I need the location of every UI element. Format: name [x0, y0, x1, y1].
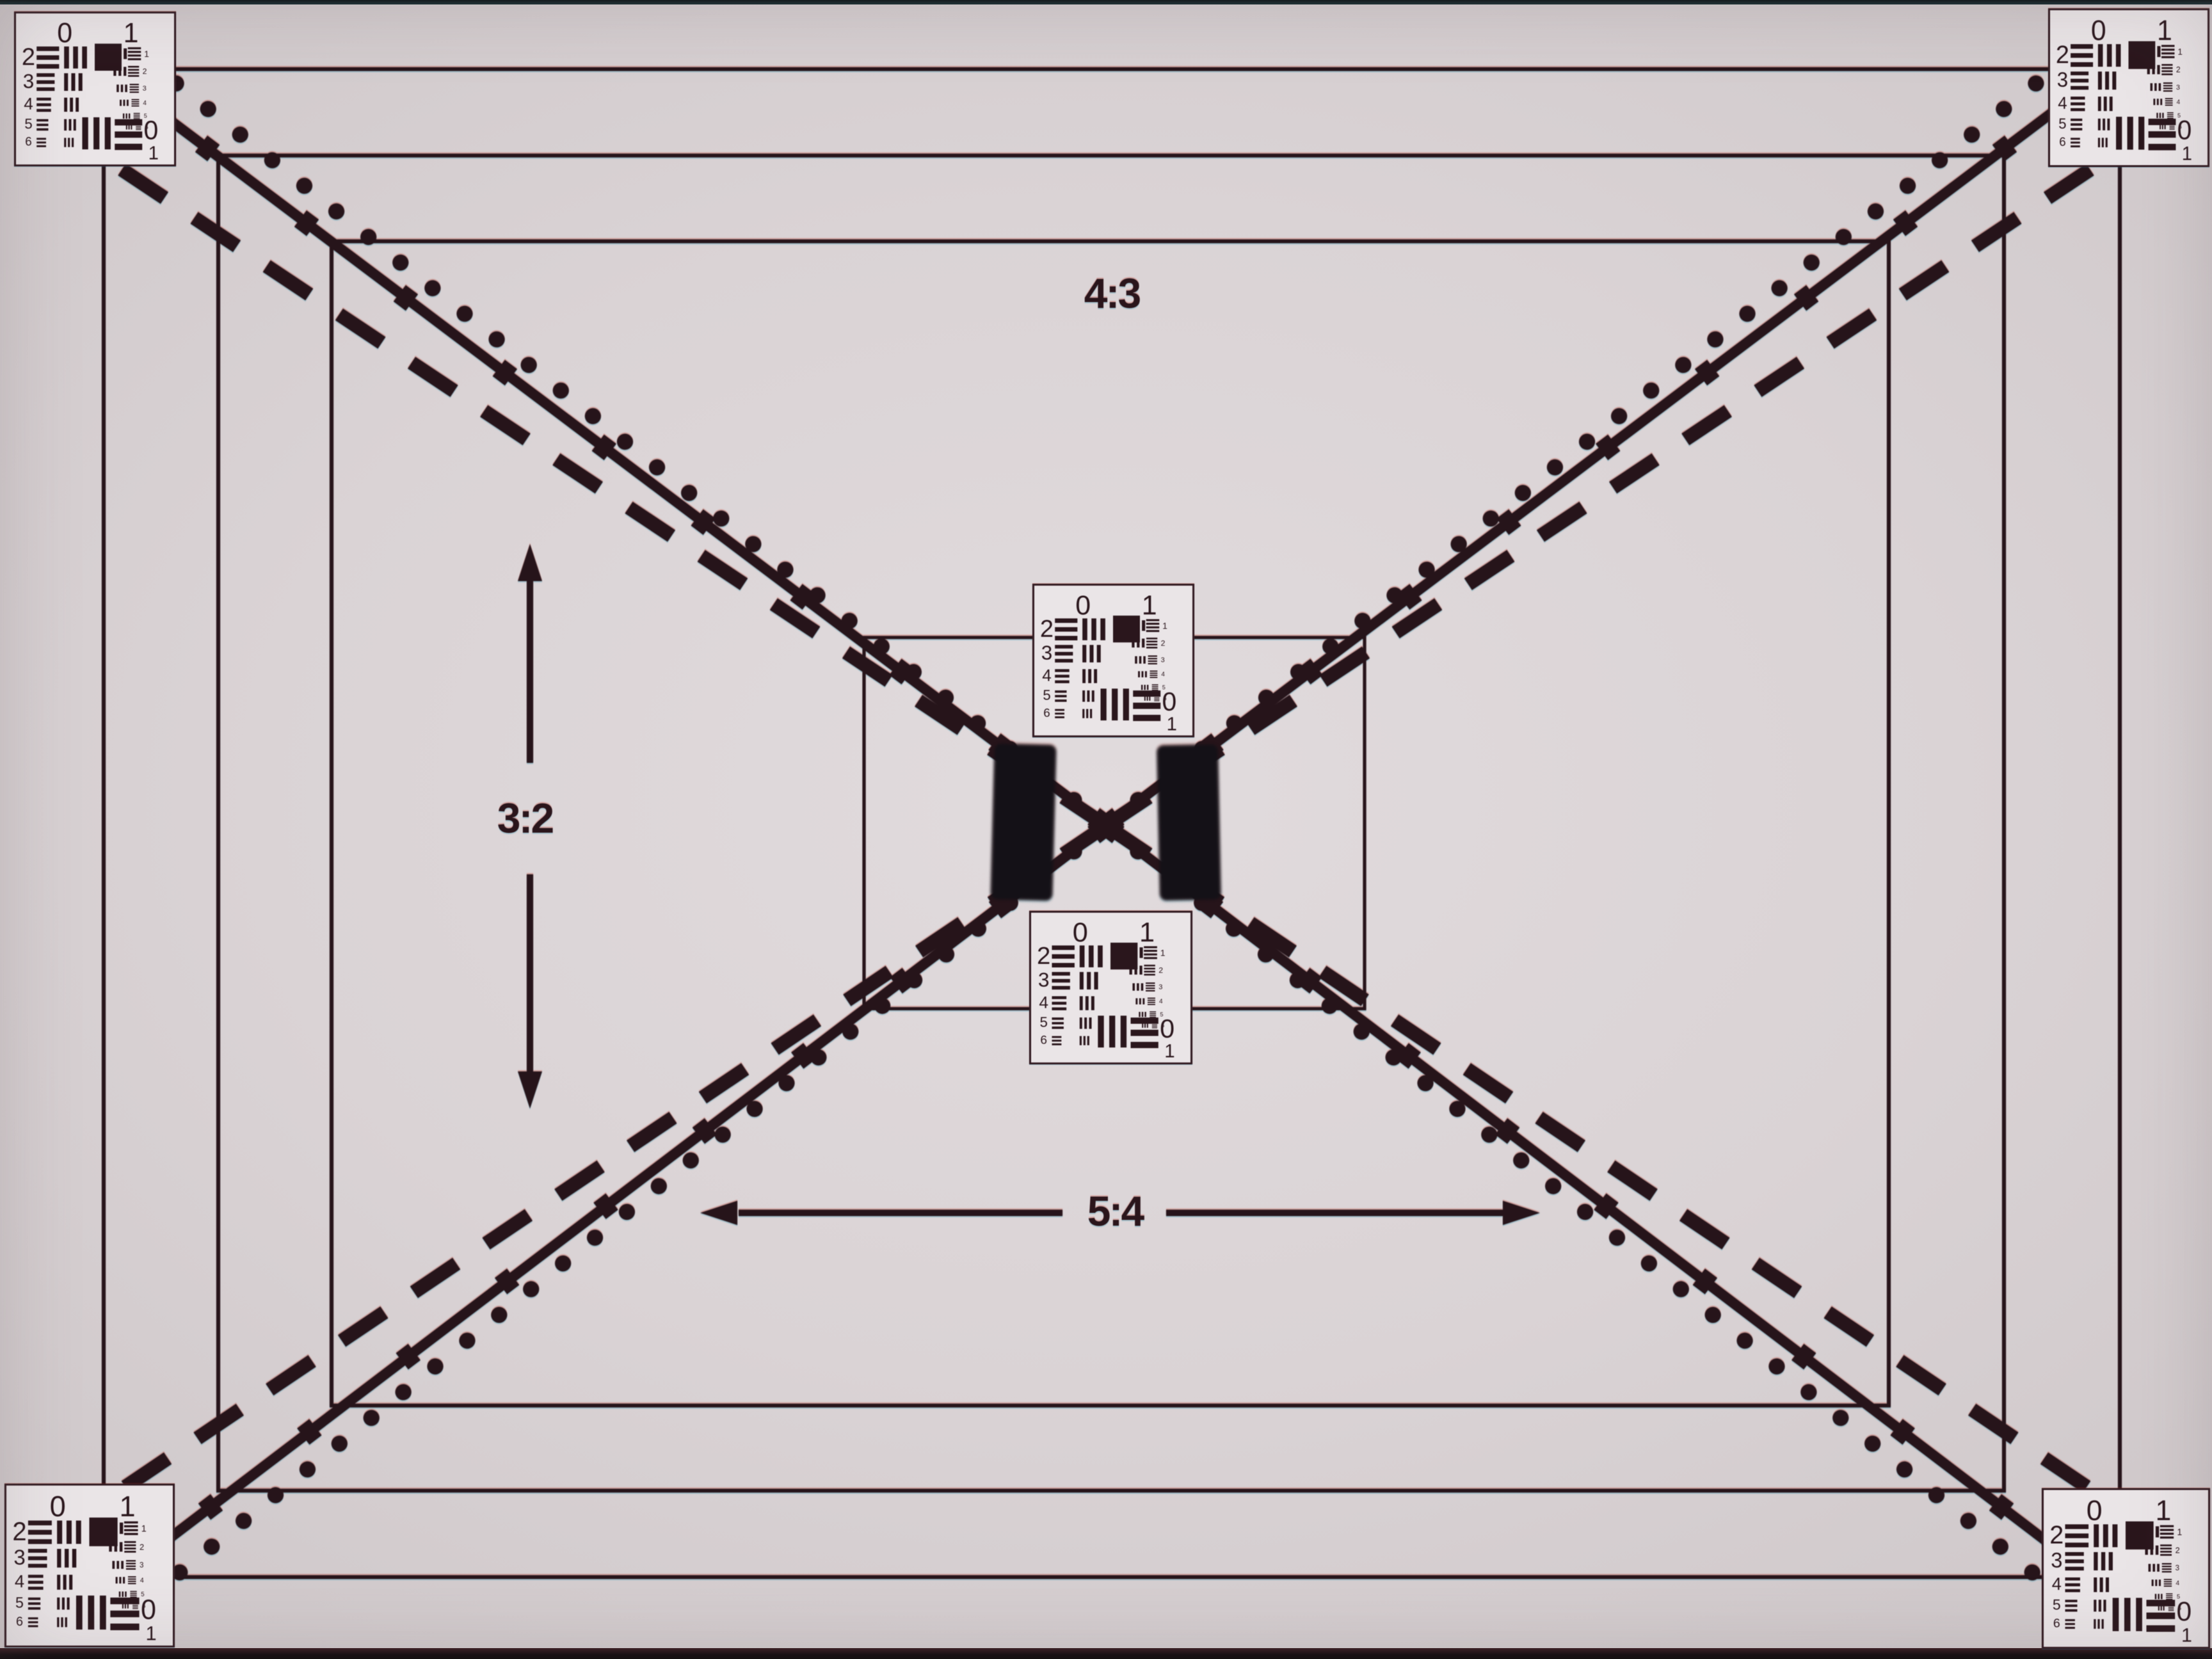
small-v-bar: [1144, 1023, 1146, 1028]
big-h-bar: [1133, 715, 1160, 721]
h-bar: [2065, 1567, 2084, 1571]
small-h-bar: [1152, 1027, 1157, 1028]
element-number: 4: [143, 100, 147, 107]
h-bar: [1055, 712, 1064, 714]
small-h-bar: [1150, 675, 1157, 676]
big-h-bar: [2149, 118, 2176, 125]
row-number: 3: [2057, 68, 2068, 92]
chart-linework: [0, 0, 2212, 1659]
small-h-bar: [2161, 70, 2172, 72]
h-bar: [36, 55, 59, 60]
usaf-target-top-right: 012345612345601: [2048, 8, 2209, 167]
row-number: 3: [23, 70, 34, 93]
small-v-bar: [1132, 639, 1134, 648]
v-bar: [72, 138, 74, 147]
v-bar: [1091, 996, 1094, 1010]
big-h-bar: [110, 1598, 139, 1604]
v-bar: [2101, 1552, 2105, 1571]
small-h-bar: [2169, 126, 2174, 127]
h-bar: [1055, 700, 1066, 702]
small-v-bar: [1134, 947, 1137, 958]
v-bar: [64, 73, 68, 91]
small-v-bar: [129, 113, 130, 118]
h-bar: [2065, 1627, 2075, 1629]
v-bar: [1097, 645, 1101, 662]
big-h-bar: [2146, 1600, 2175, 1607]
h-bar: [2065, 1609, 2078, 1612]
v-bar: [1100, 618, 1105, 640]
arrowhead-left-icon: [700, 1201, 737, 1225]
row-number: 3: [1041, 642, 1052, 664]
small-v-bar: [1137, 983, 1139, 991]
usaf-target-bottom-left: 012345612345601: [4, 1484, 175, 1647]
v-bar: [57, 1521, 62, 1544]
small-v-bar: [1132, 983, 1135, 991]
small-h-bar: [1146, 627, 1160, 629]
small-v-bar: [2151, 46, 2154, 57]
target-bottom-label-0: 0: [1162, 687, 1176, 716]
small-v-bar: [2158, 1594, 2160, 1599]
v-bar: [64, 98, 67, 112]
small-h-bar: [1152, 686, 1158, 687]
small-h-bar: [2161, 56, 2174, 58]
target-top-label-1: 1: [1142, 590, 1157, 621]
small-v-bar: [116, 1561, 119, 1569]
big-h-bar: [115, 131, 142, 138]
target-bottom-label-1: 1: [146, 1622, 157, 1644]
small-v-bar: [1135, 998, 1137, 1005]
element-number: 1: [144, 49, 149, 59]
small-h-bar: [1146, 623, 1160, 625]
small-v-bar: [1141, 685, 1142, 690]
reference-square: [2129, 41, 2156, 68]
small-h-bar: [1148, 1000, 1155, 1001]
velcro-patch-left: [991, 744, 1056, 901]
h-bar: [28, 1598, 40, 1600]
big-v-bar: [82, 117, 88, 149]
small-h-bar: [1144, 957, 1157, 959]
small-h-bar: [1146, 637, 1157, 639]
reference-square: [95, 44, 122, 70]
small-h-bar: [1146, 990, 1155, 991]
v-bar: [2094, 1599, 2096, 1612]
v-bar: [57, 1617, 59, 1627]
arrowhead-up-icon: [518, 544, 542, 581]
h-bar: [2071, 108, 2085, 111]
h-bar: [1055, 680, 1069, 683]
small-h-bar: [1150, 1013, 1156, 1014]
v-bar: [57, 1598, 60, 1610]
big-v-bar: [88, 1596, 94, 1630]
v-bar: [1098, 945, 1103, 967]
small-h-bar: [130, 1593, 136, 1594]
small-v-bar: [2160, 99, 2162, 105]
small-h-bar: [2167, 114, 2174, 115]
big-h-bar: [1133, 703, 1160, 709]
small-v-bar: [1142, 639, 1144, 648]
small-v-bar: [2152, 1564, 2155, 1571]
small-v-bar: [118, 49, 121, 60]
small-v-bar: [2155, 1594, 2157, 1599]
small-h-bar: [2161, 64, 2172, 66]
h-bar: [28, 1521, 52, 1526]
small-h-bar: [124, 1548, 136, 1550]
big-v-bar: [93, 117, 99, 149]
element-number: 3: [140, 1561, 143, 1569]
v-bar: [82, 47, 87, 68]
photo-edge-bottom: [0, 1648, 2212, 1659]
small-v-bar: [111, 49, 115, 60]
h-bar: [28, 1617, 38, 1619]
v-bar: [1089, 1018, 1092, 1029]
target-top-label-0: 0: [57, 18, 72, 49]
h-bar: [28, 1549, 47, 1553]
small-v-bar: [131, 125, 132, 130]
element-number: 3: [2176, 84, 2180, 92]
small-h-bar: [2164, 1585, 2172, 1587]
small-v-bar: [2162, 125, 2163, 129]
v-bar: [1082, 645, 1086, 662]
small-h-bar: [124, 1541, 136, 1543]
small-h-bar: [128, 66, 139, 68]
small-v-bar: [1147, 685, 1148, 690]
v-bar: [1087, 1036, 1089, 1045]
v-bar: [72, 1549, 76, 1567]
h-bar: [36, 80, 54, 84]
h-bar: [28, 1530, 52, 1535]
row-number: 4: [24, 94, 33, 113]
small-h-bar: [1148, 998, 1155, 999]
row-number: 5: [24, 116, 32, 132]
aspect-ratio-label-5-4: 5:4: [1045, 1187, 1185, 1235]
v-bar: [74, 119, 76, 131]
big-h-bar: [1131, 1042, 1158, 1048]
small-h-bar: [2163, 85, 2172, 86]
v-bar: [73, 47, 78, 68]
small-h-bar: [1148, 655, 1157, 657]
big-v-bar: [1109, 1016, 1115, 1048]
v-bar: [2097, 1619, 2099, 1629]
small-h-bar: [1152, 688, 1158, 689]
h-bar: [2065, 1605, 2078, 1607]
usaf-target-pattern: 012345612345601: [16, 13, 174, 164]
small-h-bar: [2160, 1544, 2172, 1546]
h-bar: [36, 47, 59, 51]
small-v-bar: [1147, 696, 1148, 701]
v-bar: [2094, 1552, 2097, 1571]
h-bar: [1052, 996, 1066, 998]
element-number: 1: [141, 1524, 147, 1534]
v-bar: [68, 138, 70, 147]
small-v-bar: [121, 84, 124, 92]
small-v-bar: [115, 1542, 117, 1551]
v-bar: [1082, 691, 1085, 702]
element-number: 2: [1161, 639, 1166, 648]
v-bar: [2098, 72, 2102, 90]
v-bar: [61, 1617, 63, 1627]
small-h-bar: [1144, 968, 1155, 970]
small-h-bar: [2160, 1525, 2174, 1527]
h-bar: [1052, 1039, 1061, 1041]
element-number: 3: [143, 85, 147, 93]
target-bottom-label-0: 0: [2177, 115, 2192, 145]
v-bar: [62, 1598, 65, 1610]
small-h-bar: [124, 1529, 138, 1531]
big-v-bar: [1098, 1016, 1103, 1048]
v-bar: [2105, 72, 2109, 90]
small-h-bar: [130, 84, 139, 85]
v-bar: [1086, 709, 1088, 718]
small-h-bar: [1146, 985, 1155, 986]
v-bar: [2102, 138, 2104, 147]
v-bar: [1089, 945, 1094, 967]
element-number: 3: [1161, 657, 1165, 664]
usaf-target-pattern: 012345612345601: [1031, 913, 1190, 1062]
h-bar: [2071, 72, 2088, 76]
h-bar: [1055, 675, 1069, 677]
small-v-bar: [2147, 65, 2150, 74]
small-h-bar: [126, 1566, 136, 1567]
v-bar: [2103, 1525, 2108, 1548]
v-bar: [1080, 996, 1083, 1010]
v-bar: [2094, 1525, 2099, 1548]
big-v-bar: [100, 1596, 106, 1630]
small-h-bar: [130, 1594, 136, 1596]
small-h-bar: [2169, 129, 2174, 129]
small-v-bar: [120, 1542, 122, 1551]
small-h-bar: [1150, 677, 1157, 678]
v-bar: [1082, 669, 1086, 683]
h-bar: [1052, 1036, 1061, 1038]
aspect-ratio-label-3-2: 3:2: [454, 794, 595, 842]
small-v-bar: [129, 125, 130, 130]
small-h-bar: [2168, 1608, 2174, 1609]
big-v-bar: [76, 1596, 83, 1630]
v-bar: [1089, 645, 1093, 662]
big-v-bar: [2136, 1598, 2142, 1631]
small-v-bar: [1144, 685, 1145, 690]
small-v-bar: [1142, 620, 1145, 631]
v-bar: [67, 1598, 70, 1610]
test-chart-photo: 4:3 3:2 5:4 0123456123456010123456123456…: [0, 0, 2212, 1659]
small-v-bar: [1139, 998, 1141, 1005]
small-h-bar: [128, 54, 141, 56]
v-bar: [2107, 44, 2112, 67]
target-top-label-0: 0: [2091, 15, 2106, 47]
small-h-bar: [1148, 1002, 1155, 1003]
small-v-bar: [1138, 671, 1140, 678]
v-bar: [2098, 44, 2103, 67]
small-h-bar: [1148, 1004, 1155, 1005]
v-bar: [2106, 1578, 2109, 1592]
small-h-bar: [128, 47, 141, 49]
element-number: 2: [1158, 966, 1163, 975]
small-v-bar: [1134, 966, 1137, 975]
small-h-bar: [128, 51, 141, 53]
small-h-bar: [130, 89, 139, 90]
h-bar: [28, 1539, 52, 1544]
h-bar: [36, 141, 46, 143]
v-bar: [1080, 972, 1084, 990]
h-bar: [2065, 1589, 2080, 1592]
big-h-bar: [110, 1624, 139, 1630]
v-bar: [2103, 1599, 2106, 1612]
small-v-bar: [2160, 125, 2161, 129]
h-bar: [2065, 1619, 2075, 1621]
h-bar: [28, 1607, 40, 1610]
row-number: 2: [1037, 942, 1050, 970]
small-h-bar: [2166, 1597, 2172, 1598]
h-bar: [36, 138, 46, 140]
v-bar: [67, 1521, 72, 1544]
small-h-bar: [2160, 1551, 2172, 1553]
v-bar: [1092, 691, 1094, 702]
small-v-bar: [2145, 46, 2149, 57]
small-h-bar: [128, 58, 141, 60]
diagonal-dashed-line-0: [96, 152, 1106, 826]
small-v-bar: [1143, 656, 1146, 664]
small-h-bar: [2161, 49, 2174, 51]
h-bar: [1055, 691, 1066, 693]
v-bar: [64, 119, 67, 131]
h-bar: [2071, 141, 2080, 143]
small-h-bar: [2162, 1566, 2172, 1567]
h-bar: [1055, 636, 1077, 640]
v-bar: [1094, 972, 1098, 990]
small-h-bar: [124, 1521, 138, 1523]
small-h-bar: [131, 99, 139, 100]
usaf-target-top-left: 012345612345601: [14, 12, 176, 166]
usaf-target-pattern: 012345612345601: [1034, 586, 1192, 735]
h-bar: [2071, 44, 2093, 49]
target-bottom-label-0: 0: [2177, 1596, 2192, 1627]
small-h-bar: [2167, 116, 2174, 117]
small-v-bar: [1137, 639, 1139, 648]
h-bar: [2071, 145, 2080, 147]
v-bar: [1090, 709, 1092, 718]
small-h-bar: [136, 126, 141, 127]
h-bar: [1055, 627, 1077, 632]
small-v-bar: [118, 67, 121, 76]
h-bar: [28, 1587, 44, 1590]
reference-square: [1113, 616, 1140, 643]
small-h-bar: [1150, 1015, 1156, 1016]
h-bar: [36, 73, 54, 77]
big-v-bar: [2138, 116, 2144, 149]
usaf-target-pattern: 012345612345601: [6, 1486, 173, 1646]
usaf-target-center-top: 012345612345601: [1032, 584, 1194, 737]
small-h-bar: [2161, 74, 2172, 76]
small-h-bar: [1150, 1011, 1156, 1012]
small-v-bar: [2152, 65, 2155, 74]
small-v-bar: [1135, 656, 1137, 664]
small-v-bar: [2156, 113, 2158, 118]
small-h-bar: [1148, 663, 1157, 664]
row-number: 4: [1039, 993, 1048, 1012]
small-v-bar: [2143, 1527, 2146, 1537]
small-h-bar: [1152, 1026, 1157, 1027]
photo-edge-top: [0, 0, 2212, 4]
small-h-bar: [2164, 1581, 2172, 1582]
small-v-bar: [1149, 696, 1150, 701]
v-bar: [1084, 1018, 1087, 1029]
target-bottom-label-1: 1: [148, 143, 159, 164]
big-h-bar: [1131, 1030, 1158, 1036]
small-h-bar: [1144, 974, 1155, 976]
small-v-bar: [1130, 620, 1133, 631]
v-bar: [69, 1575, 72, 1589]
h-bar: [1055, 659, 1073, 662]
h-bar: [2071, 62, 2093, 67]
small-h-bar: [2167, 112, 2174, 113]
small-v-bar: [2161, 1594, 2163, 1599]
v-bar: [2094, 1619, 2096, 1629]
small-h-bar: [131, 103, 139, 104]
small-h-bar: [2164, 1583, 2172, 1585]
v-bar: [57, 1549, 61, 1567]
usaf-target-center-bottom: 012345612345601: [1029, 911, 1192, 1064]
small-h-bar: [132, 1608, 138, 1609]
h-bar: [1052, 954, 1074, 959]
v-bar: [71, 73, 75, 91]
big-h-bar: [115, 119, 142, 125]
element-number: 2: [140, 1542, 144, 1551]
small-v-bar: [2152, 1580, 2154, 1586]
small-h-bar: [2166, 1599, 2172, 1600]
v-bar: [2094, 1578, 2097, 1592]
row-number: 6: [1040, 1034, 1047, 1047]
v-bar: [2102, 1619, 2104, 1629]
element-number: 4: [1161, 671, 1165, 678]
small-h-bar: [2160, 1537, 2174, 1539]
v-bar: [1094, 669, 1097, 683]
small-v-bar: [1139, 1012, 1140, 1017]
h-bar: [1052, 1022, 1063, 1025]
small-h-bar: [132, 1605, 138, 1606]
small-h-bar: [2166, 1593, 2172, 1594]
small-h-bar: [128, 69, 139, 71]
v-bar: [2103, 118, 2105, 130]
v-bar: [65, 1617, 67, 1627]
small-v-bar: [122, 1592, 124, 1598]
h-bar: [2071, 86, 2088, 90]
small-v-bar: [1128, 947, 1131, 958]
small-v-bar: [1141, 983, 1144, 991]
big-v-bar: [1123, 689, 1129, 721]
small-h-bar: [126, 1568, 136, 1569]
small-v-bar: [2151, 83, 2153, 91]
v-bar: [2100, 1578, 2103, 1592]
small-h-bar: [128, 1583, 136, 1584]
target-bottom-label-0: 0: [143, 116, 158, 145]
target-top-label-0: 0: [50, 1490, 66, 1523]
v-bar: [1084, 1036, 1086, 1045]
h-bar: [1055, 716, 1064, 718]
small-v-bar: [119, 1592, 121, 1598]
h-bar: [1055, 652, 1073, 656]
small-h-bar: [1146, 619, 1160, 621]
small-v-bar: [125, 84, 127, 92]
arrowhead-down-icon: [518, 1071, 542, 1109]
h-bar: [2065, 1578, 2080, 1581]
element-number: 2: [143, 67, 147, 76]
small-v-bar: [109, 1542, 111, 1551]
small-h-bar: [136, 129, 141, 130]
v-bar: [1086, 996, 1089, 1010]
small-h-bar: [134, 113, 140, 114]
aspect-ratio-label-4-3: 4:3: [1041, 269, 1182, 317]
v-bar: [2098, 118, 2101, 130]
